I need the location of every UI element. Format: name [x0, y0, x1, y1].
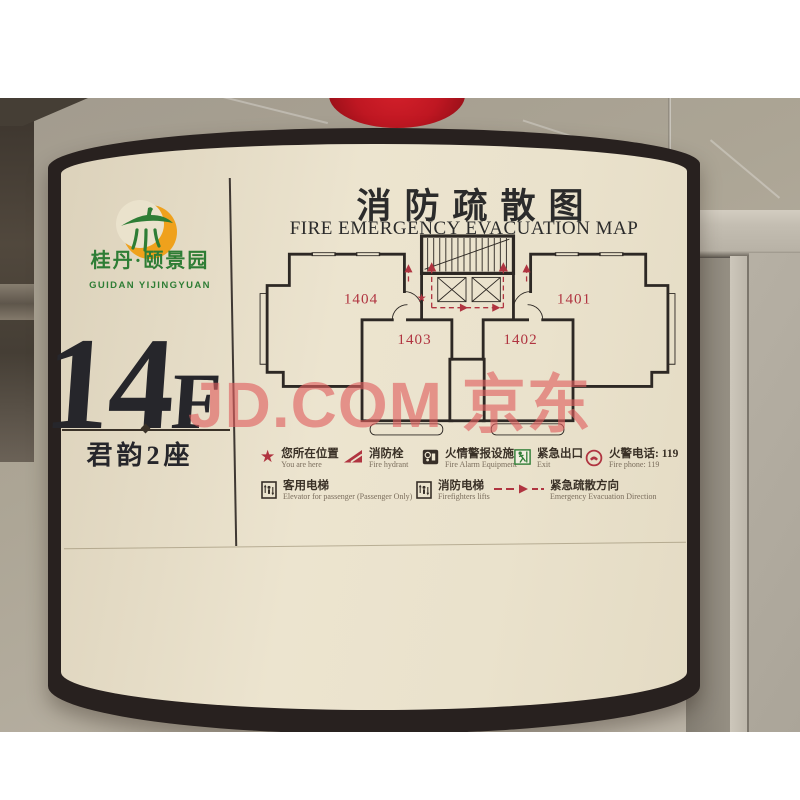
- wall-background: 桂丹·颐景园 GUIDAN YIJINGYUAN 14F 君韵2座 消防疏散图 …: [0, 98, 800, 732]
- unit-label-1403: 1403: [397, 332, 431, 348]
- brand-name-en: GUIDAN YIJINGYUAN: [45, 280, 255, 291]
- firefighter-elevator-icon: [416, 481, 432, 499]
- stairwell-walls: [422, 236, 514, 273]
- you-are-here-star-marker: ★: [417, 292, 427, 305]
- legend-label-cn: 消防电梯: [438, 480, 490, 492]
- legend-item-you-are-here: ★ 您所在位置You are here: [260, 448, 339, 470]
- exit-icon: [514, 449, 531, 465]
- sign-panel-seam: [64, 542, 686, 550]
- legend-item-firefighter-elevator: 消防电梯Firefighters lifts: [416, 480, 490, 502]
- legend-item-fire-alarm: 火情警报设施Fire Alarm Equipment: [422, 448, 517, 470]
- unit-label-1404: 1404: [344, 292, 378, 308]
- legend-label-cn: 火警电话: 119: [609, 448, 678, 460]
- legend-item-exit: 紧急出口Exit: [514, 448, 583, 470]
- legend-label-en: You are here: [281, 460, 339, 470]
- legend-label-en: Fire Alarm Equipment: [445, 460, 517, 470]
- legend-label-en: Fire phone: 119: [609, 460, 678, 470]
- legend-item-fire-hydrant: 消防栓Fire hydrant: [343, 448, 408, 470]
- jd-watermark: JD.COM 京东: [188, 354, 592, 446]
- evacuation-direction-arrow-icon: [494, 483, 544, 495]
- fire-phone-icon: [585, 449, 603, 467]
- legend-label-en: Exit: [537, 460, 583, 470]
- legend-label-cn: 紧急出口: [537, 448, 583, 460]
- legend-label-cn: 客用电梯: [283, 480, 412, 492]
- core-walls: [422, 273, 514, 317]
- unit-label-1402: 1402: [503, 332, 537, 348]
- elevator-x-marks: [438, 277, 501, 301]
- legend-item-fire-phone: 火警电话: 119Fire phone: 119: [585, 448, 678, 470]
- legend-label-en: Firefighters lifts: [438, 492, 490, 502]
- legend-label-cn: 紧急疏散方向: [550, 480, 656, 492]
- you-are-here-star-icon: ★: [260, 449, 275, 466]
- passenger-elevator-icon: [261, 481, 277, 499]
- door-swing-arcs: [392, 292, 542, 320]
- legend-item-passenger-elevator: 客用电梯Elevator for passenger (Passenger On…: [261, 480, 412, 502]
- legend-label-en: Fire hydrant: [369, 460, 408, 470]
- legend-label-en: Emergency Evacuation Direction: [550, 492, 656, 502]
- legend-label-cn: 消防栓: [369, 448, 408, 460]
- brand-name-cn: 桂丹·颐景园: [55, 244, 245, 273]
- legend-label-en: Elevator for passenger (Passenger Only): [283, 492, 412, 502]
- fire-alarm-icon: [422, 449, 439, 465]
- photo-of-evacuation-sign: 桂丹·颐景园 GUIDAN YIJINGYUAN 14F 君韵2座 消防疏散图 …: [0, 0, 800, 800]
- legend-label-cn: 火情警报设施: [445, 448, 517, 460]
- stair-treads: [428, 238, 507, 271]
- legend-item-evacuation-direction: 紧急疏散方向Emergency Evacuation Direction: [494, 480, 656, 502]
- unit-label-1401: 1401: [557, 292, 591, 308]
- stair-diagonal: [425, 239, 510, 269]
- legend-label-cn: 您所在位置: [281, 448, 339, 460]
- fire-hydrant-icon: [343, 449, 363, 464]
